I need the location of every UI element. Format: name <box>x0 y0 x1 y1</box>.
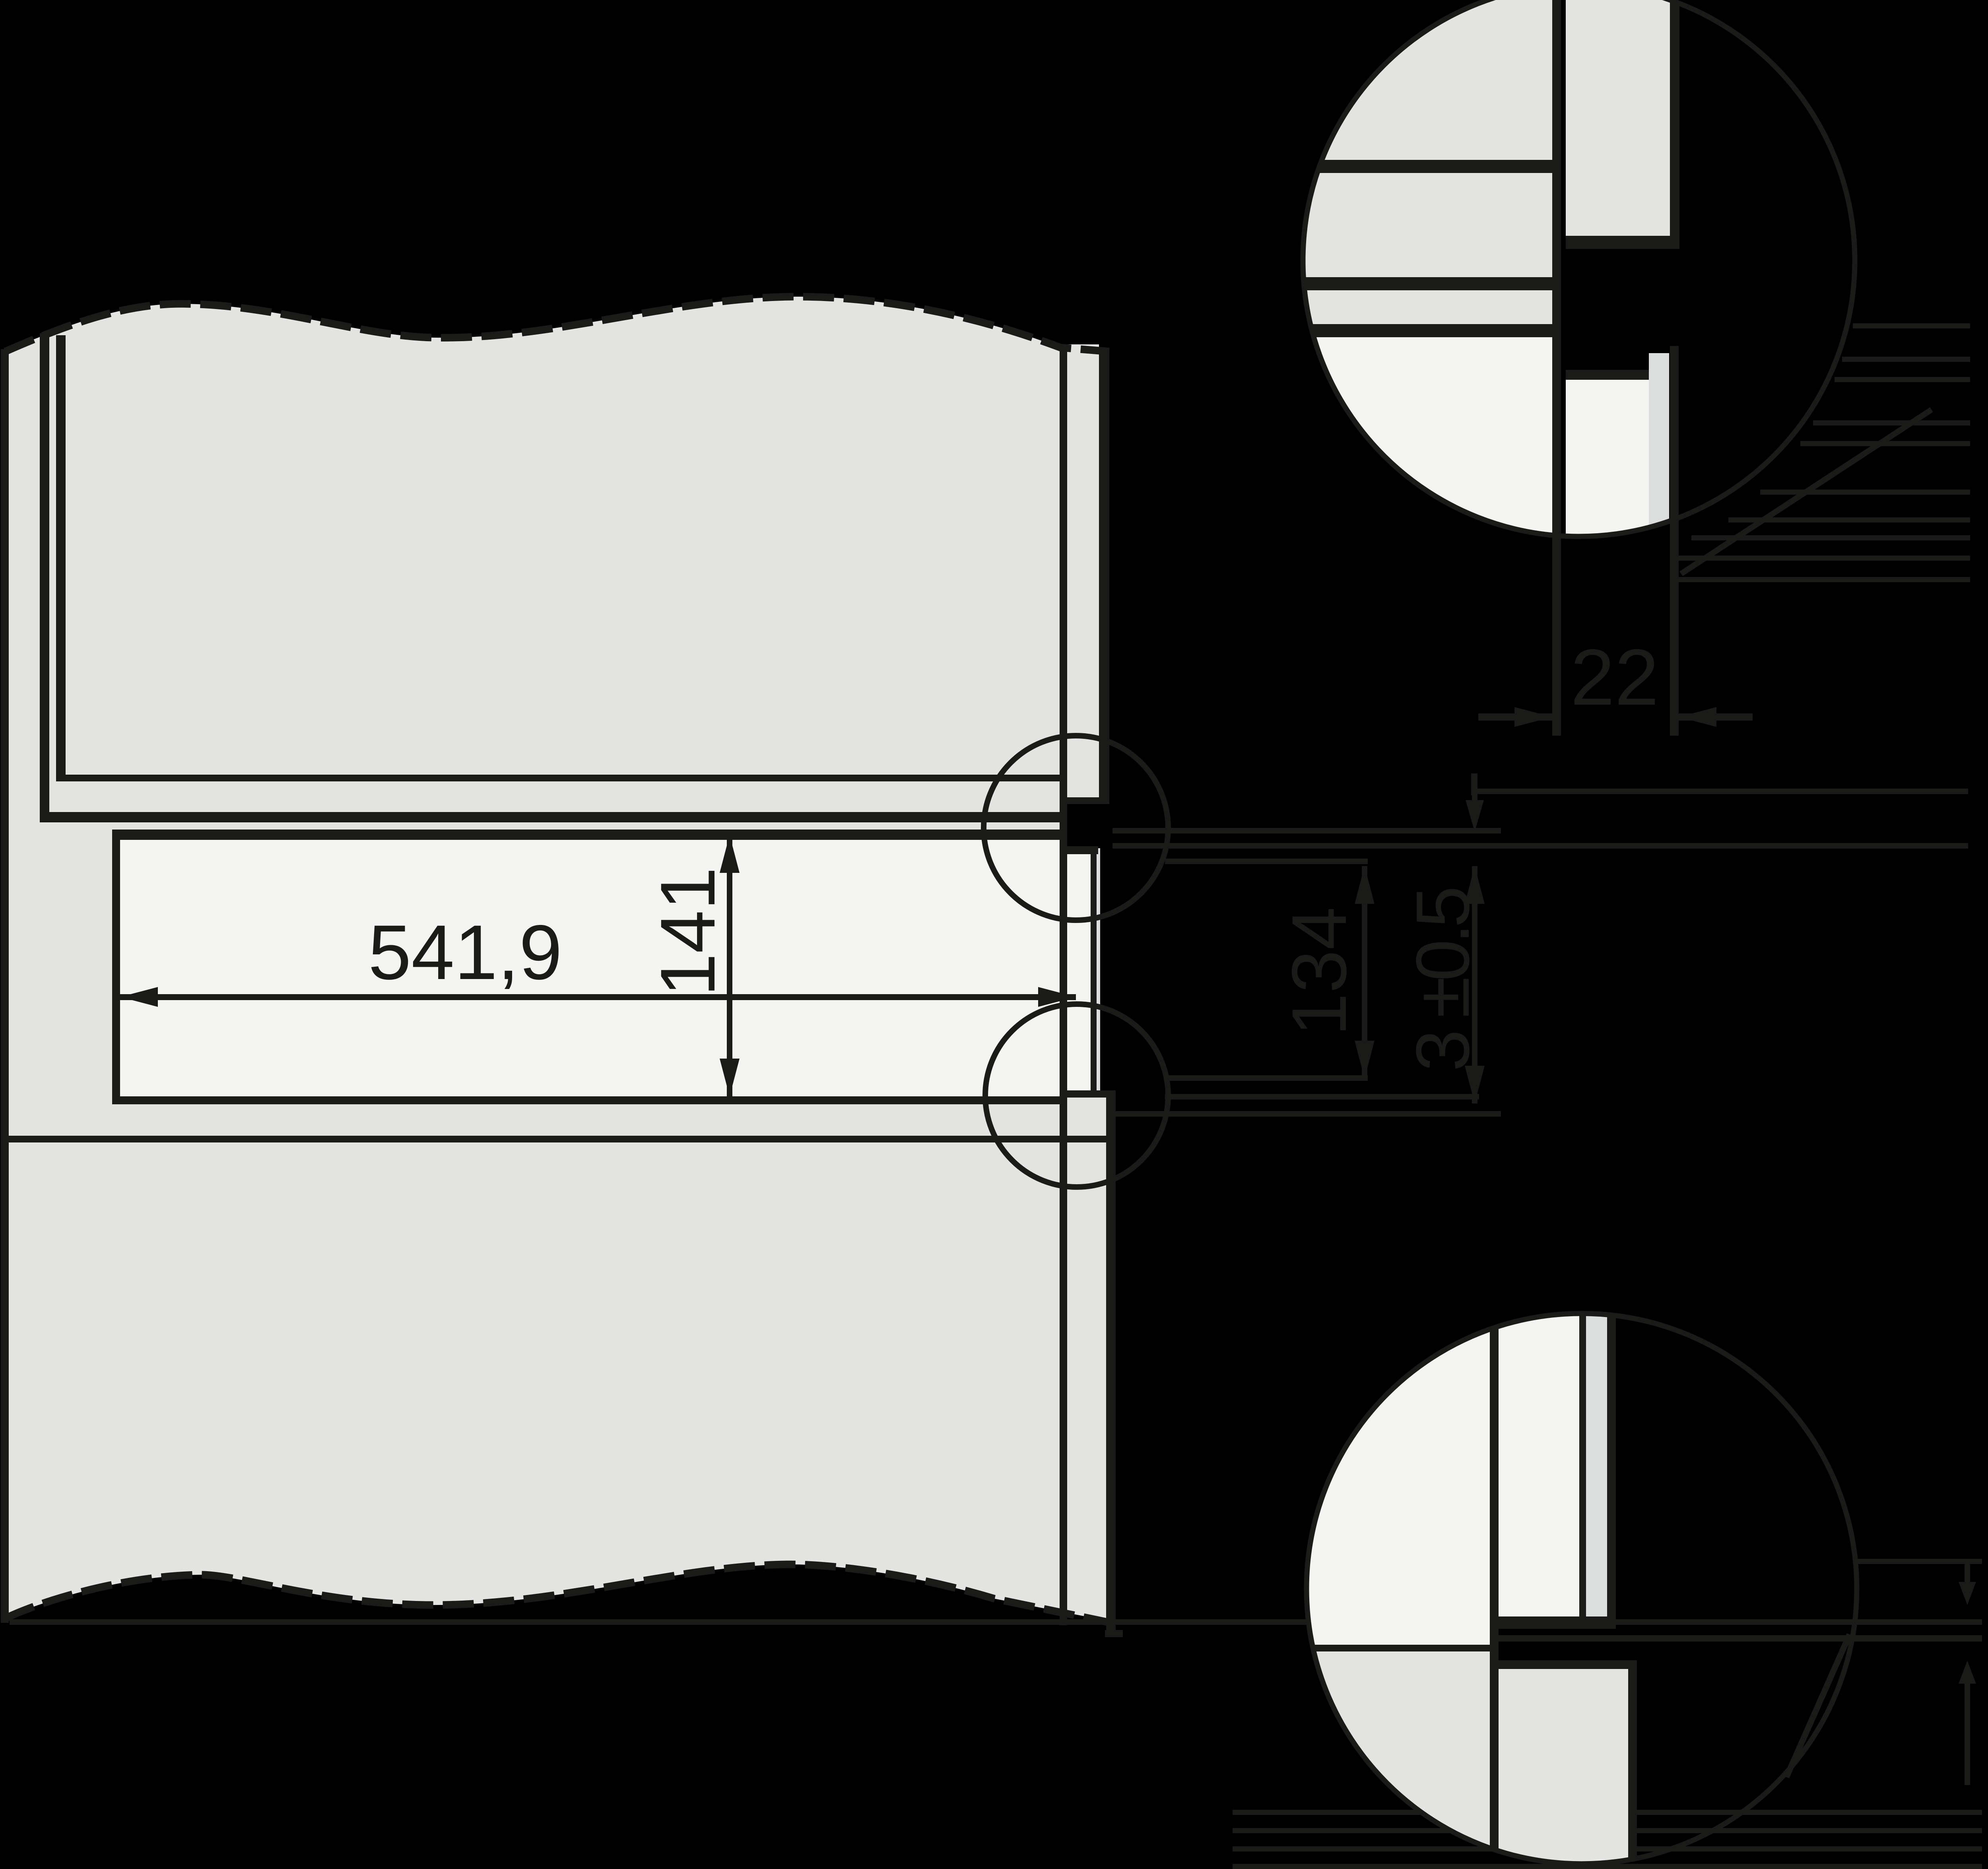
svg-text:141: 141 <box>645 867 731 996</box>
svg-text:3 ±0.5: 3 ±0.5 <box>1401 889 1485 1071</box>
svg-text:134: 134 <box>1276 907 1363 1036</box>
svg-text:541,9: 541,9 <box>368 909 562 996</box>
svg-text:22: 22 <box>1571 633 1659 722</box>
